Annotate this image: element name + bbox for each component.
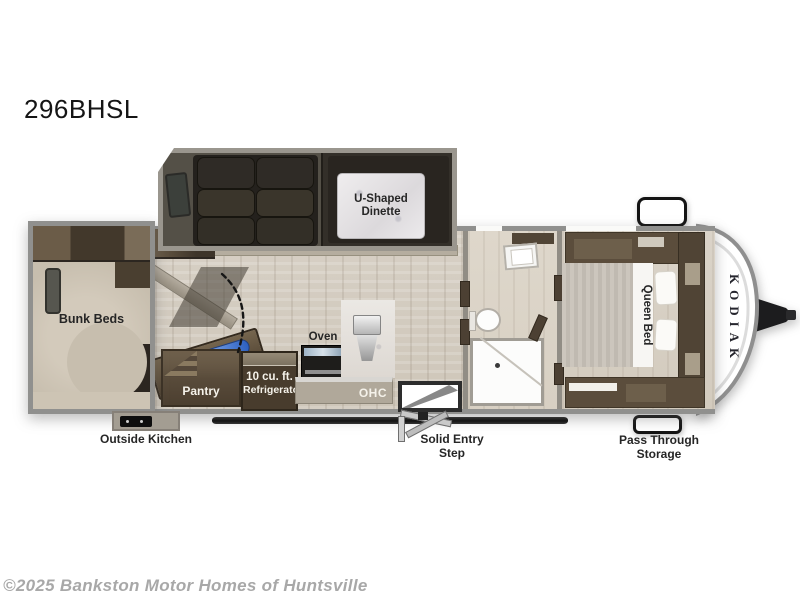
pass-label-line2: Storage <box>599 448 719 462</box>
solid-entry-step-label: Solid EntryStep <box>402 433 502 461</box>
outside-kitchen-label: Outside Kitchen <box>86 433 206 447</box>
step-label-line2: Step <box>402 447 502 461</box>
pass-label-line1: Pass Through <box>599 434 719 448</box>
pass-through-storage-label: Pass ThroughStorage <box>599 434 719 462</box>
tv-swivel-arc <box>0 0 800 600</box>
floorplan-page: 296BHSL KODIAK Hinged Ent Ctr Pantry 10 … <box>0 0 800 600</box>
step-label-line1: Solid Entry <box>402 433 502 447</box>
dealer-watermark: ©2025 Bankston Motor Homes of Huntsville <box>3 576 368 596</box>
